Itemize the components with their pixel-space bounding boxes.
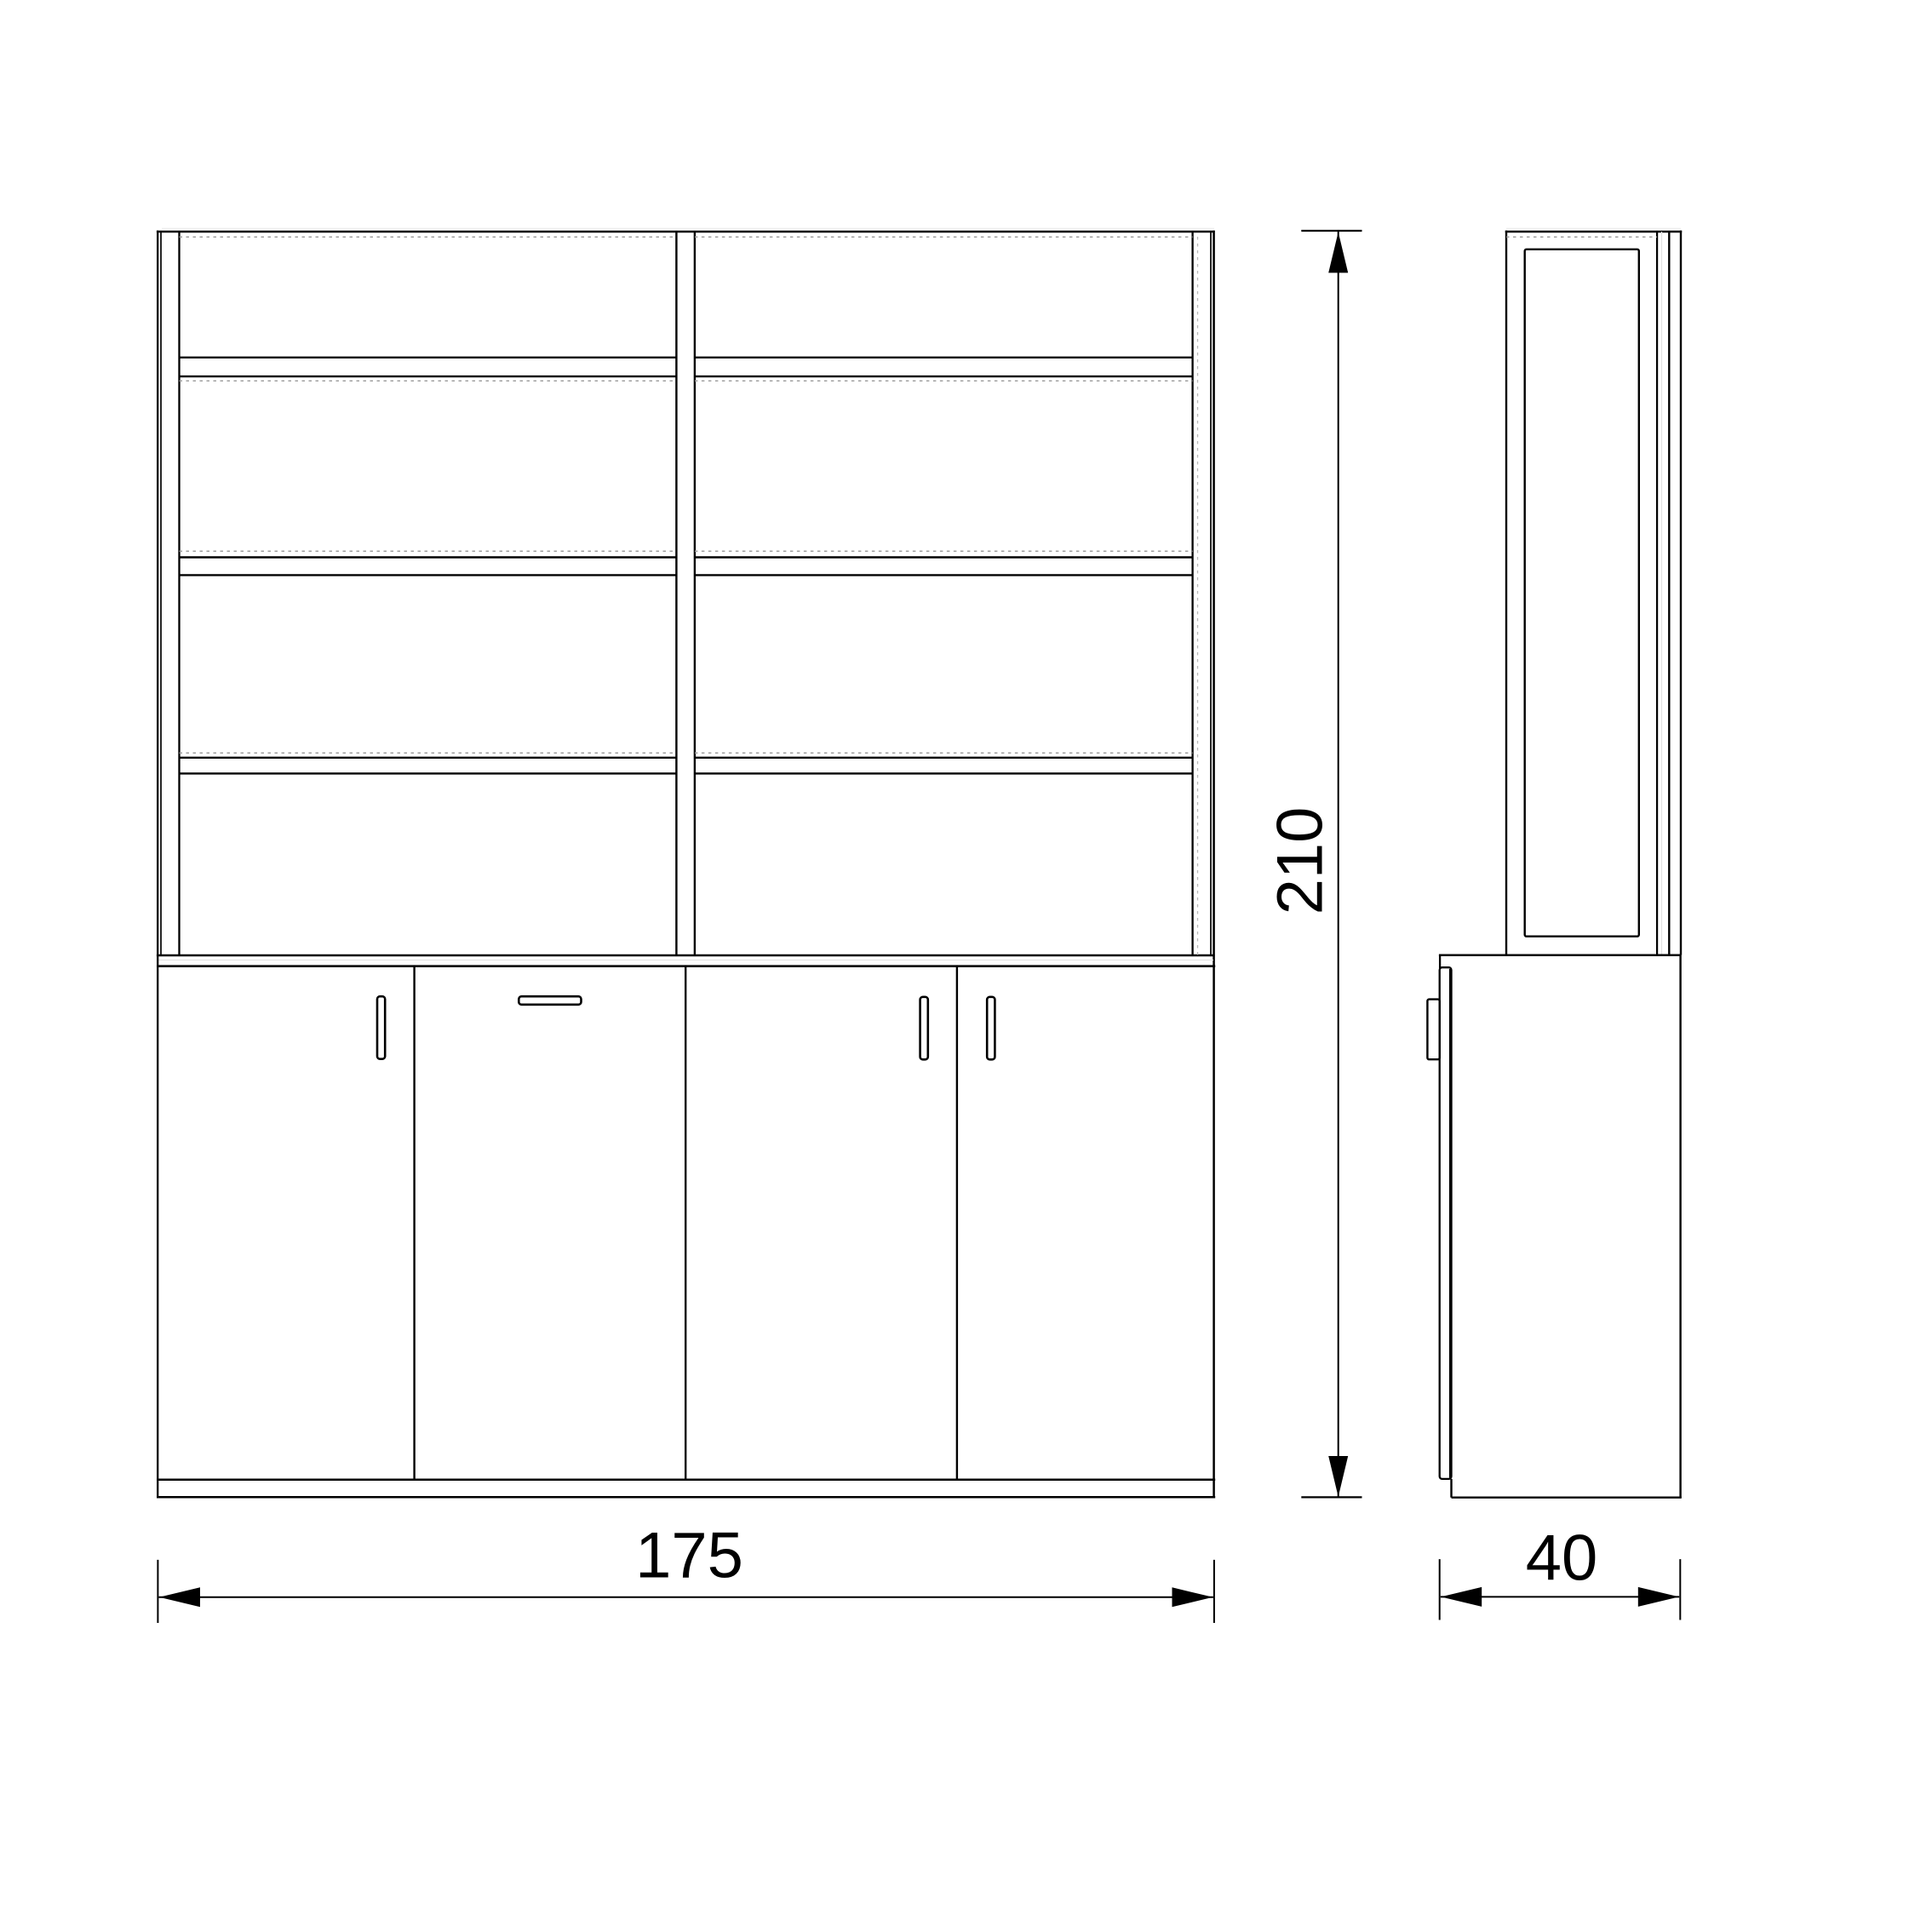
svg-text:40: 40 (1526, 1522, 1598, 1595)
svg-text:210: 210 (1264, 807, 1337, 915)
svg-text:175: 175 (635, 1520, 743, 1592)
